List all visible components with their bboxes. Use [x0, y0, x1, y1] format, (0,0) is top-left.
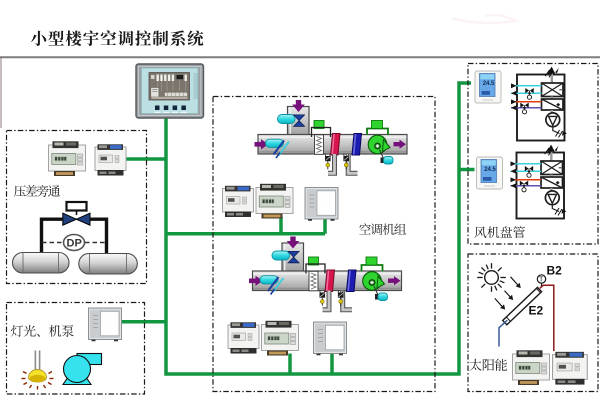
svg-text:B2: B2: [547, 264, 563, 278]
svg-text:T: T: [539, 277, 544, 284]
svg-text:E2: E2: [529, 304, 544, 318]
svg-text:DP: DP: [67, 238, 82, 250]
